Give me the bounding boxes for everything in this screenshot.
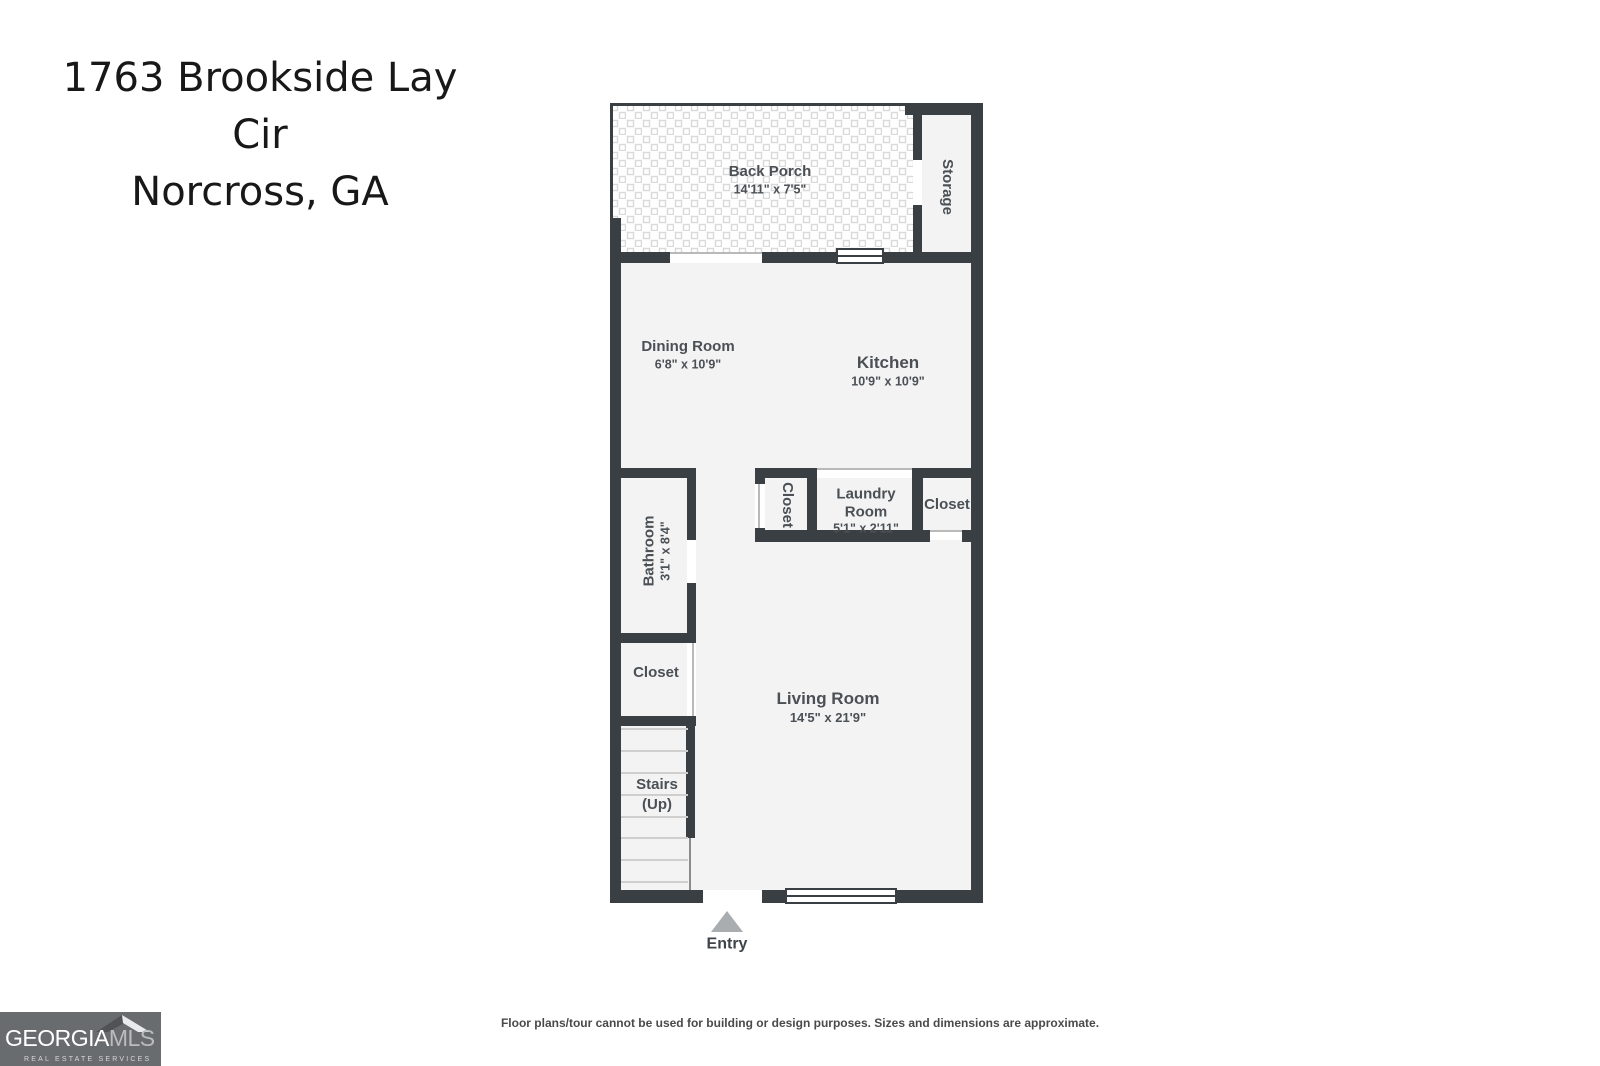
georgia-mls-logo: GEORGIAMLS REAL ESTATE SERVICES	[0, 1012, 161, 1066]
wall	[884, 252, 983, 263]
floor-plan-page: { "title": { "line1": "1763 Brookside La…	[0, 0, 1600, 1066]
wall	[913, 115, 922, 160]
stair-tread	[621, 859, 688, 861]
laundry-room-dims: 5'1" x 2'11"	[821, 522, 911, 537]
left-closet-label: Closet	[633, 664, 679, 682]
bathroom-door-opening	[687, 540, 696, 583]
wall	[762, 890, 785, 903]
closet-door-threshold	[692, 643, 694, 716]
floor-plan: Back Porch 14'11" x 7'5" Storage Dining …	[0, 0, 1600, 1066]
wall	[610, 103, 613, 221]
stair-tread	[621, 881, 688, 883]
wall	[762, 252, 836, 263]
stair-tread	[621, 728, 688, 730]
logo-tagline: REAL ESTATE SERVICES	[24, 1056, 151, 1063]
wall	[755, 468, 765, 484]
entry-arrow-icon	[711, 911, 743, 932]
wall	[610, 252, 670, 263]
bathroom-label-group: Bathroom 3'1" x 8'4"	[641, 516, 674, 587]
porch-door-opening	[670, 254, 762, 263]
stair-tread	[621, 750, 688, 752]
laundry-door-opening	[817, 470, 912, 478]
porch-door-threshold	[670, 252, 762, 254]
wall	[610, 633, 696, 643]
right-closet-door-opening	[930, 532, 962, 540]
hall-closet-label: Closet	[778, 482, 796, 528]
stair-tread	[621, 772, 688, 774]
wall	[897, 890, 983, 903]
kitchen-window	[836, 248, 884, 264]
right-closet-door-threshold	[930, 530, 962, 532]
dining-room-label: Dining Room	[641, 338, 734, 356]
entry-label: Entry	[707, 934, 748, 953]
right-closet-label: Closet	[924, 496, 970, 514]
back-porch-label: Back Porch	[729, 163, 812, 181]
dining-room-dims: 6'8" x 10'9"	[655, 358, 721, 373]
wall	[687, 468, 696, 540]
wall	[610, 890, 703, 903]
wall	[610, 716, 696, 726]
wall	[610, 218, 621, 903]
back-porch-dims: 14'11" x 7'5"	[734, 183, 807, 198]
laundry-room-label-group: Laundry Room 5'1" x 2'11"	[821, 486, 911, 537]
logo-brand-secondary: MLS	[109, 1025, 155, 1051]
kitchen-label: Kitchen	[857, 353, 919, 373]
stair-tread	[621, 816, 688, 818]
bathroom-dims: 3'1" x 8'4"	[659, 516, 674, 587]
wall	[610, 468, 696, 478]
stairs-label: Stairs (Up)	[622, 775, 692, 815]
laundry-room-label: Laundry Room	[821, 486, 911, 522]
entry-door-opening	[703, 890, 762, 903]
kitchen-dims: 10'9" x 10'9"	[851, 375, 924, 390]
wall	[610, 103, 913, 106]
living-room-window	[785, 888, 897, 904]
stair-tread	[621, 837, 688, 839]
storage-label: Storage	[938, 159, 956, 215]
stair-rail-line	[689, 838, 691, 890]
wall	[971, 103, 983, 903]
hall-closet-door-opening	[755, 484, 765, 528]
laundry-door-threshold	[817, 468, 912, 470]
disclaimer-text: Floor plans/tour cannot be used for buil…	[0, 1016, 1600, 1030]
bathroom-label: Bathroom	[641, 516, 659, 587]
logo-brand-primary: GEORGIA	[5, 1025, 109, 1051]
wall	[962, 530, 983, 542]
storage-door-opening	[913, 160, 922, 205]
living-room-dims: 14'5" x 21'9"	[790, 710, 866, 726]
logo-brand: GEORGIAMLS	[5, 1025, 155, 1052]
wall	[912, 468, 983, 478]
living-room-label: Living Room	[777, 689, 880, 709]
hall-closet-door-threshold	[758, 484, 760, 528]
